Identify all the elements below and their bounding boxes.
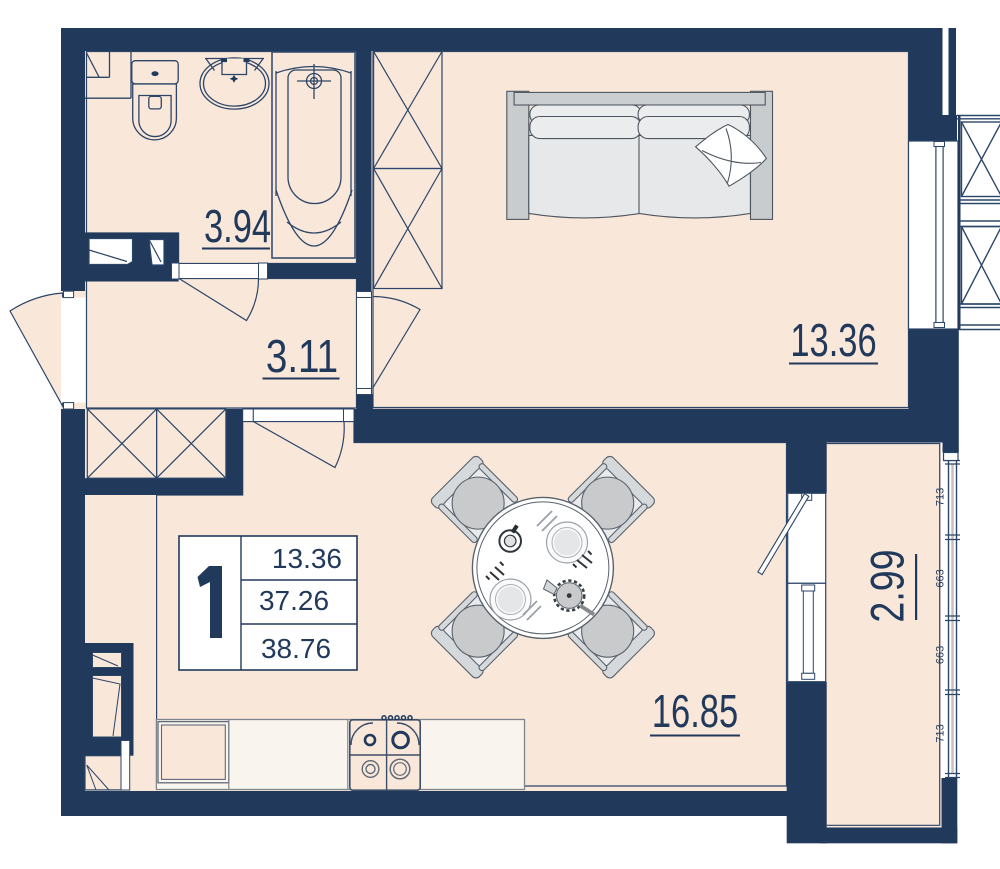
svg-text:38.76: 38.76: [261, 633, 331, 664]
svg-text:3.11: 3.11: [266, 331, 338, 382]
svg-text:37.26: 37.26: [259, 585, 329, 616]
svg-text:13.36: 13.36: [790, 314, 876, 366]
svg-text:3.94: 3.94: [204, 200, 271, 252]
svg-text:2.99: 2.99: [862, 549, 915, 622]
svg-text:13.36: 13.36: [272, 543, 342, 574]
svg-text:663: 663: [935, 569, 947, 587]
svg-text:663: 663: [935, 646, 947, 664]
svg-text:713: 713: [935, 724, 947, 742]
svg-text:16.85: 16.85: [652, 685, 738, 737]
svg-text:713: 713: [935, 488, 947, 506]
